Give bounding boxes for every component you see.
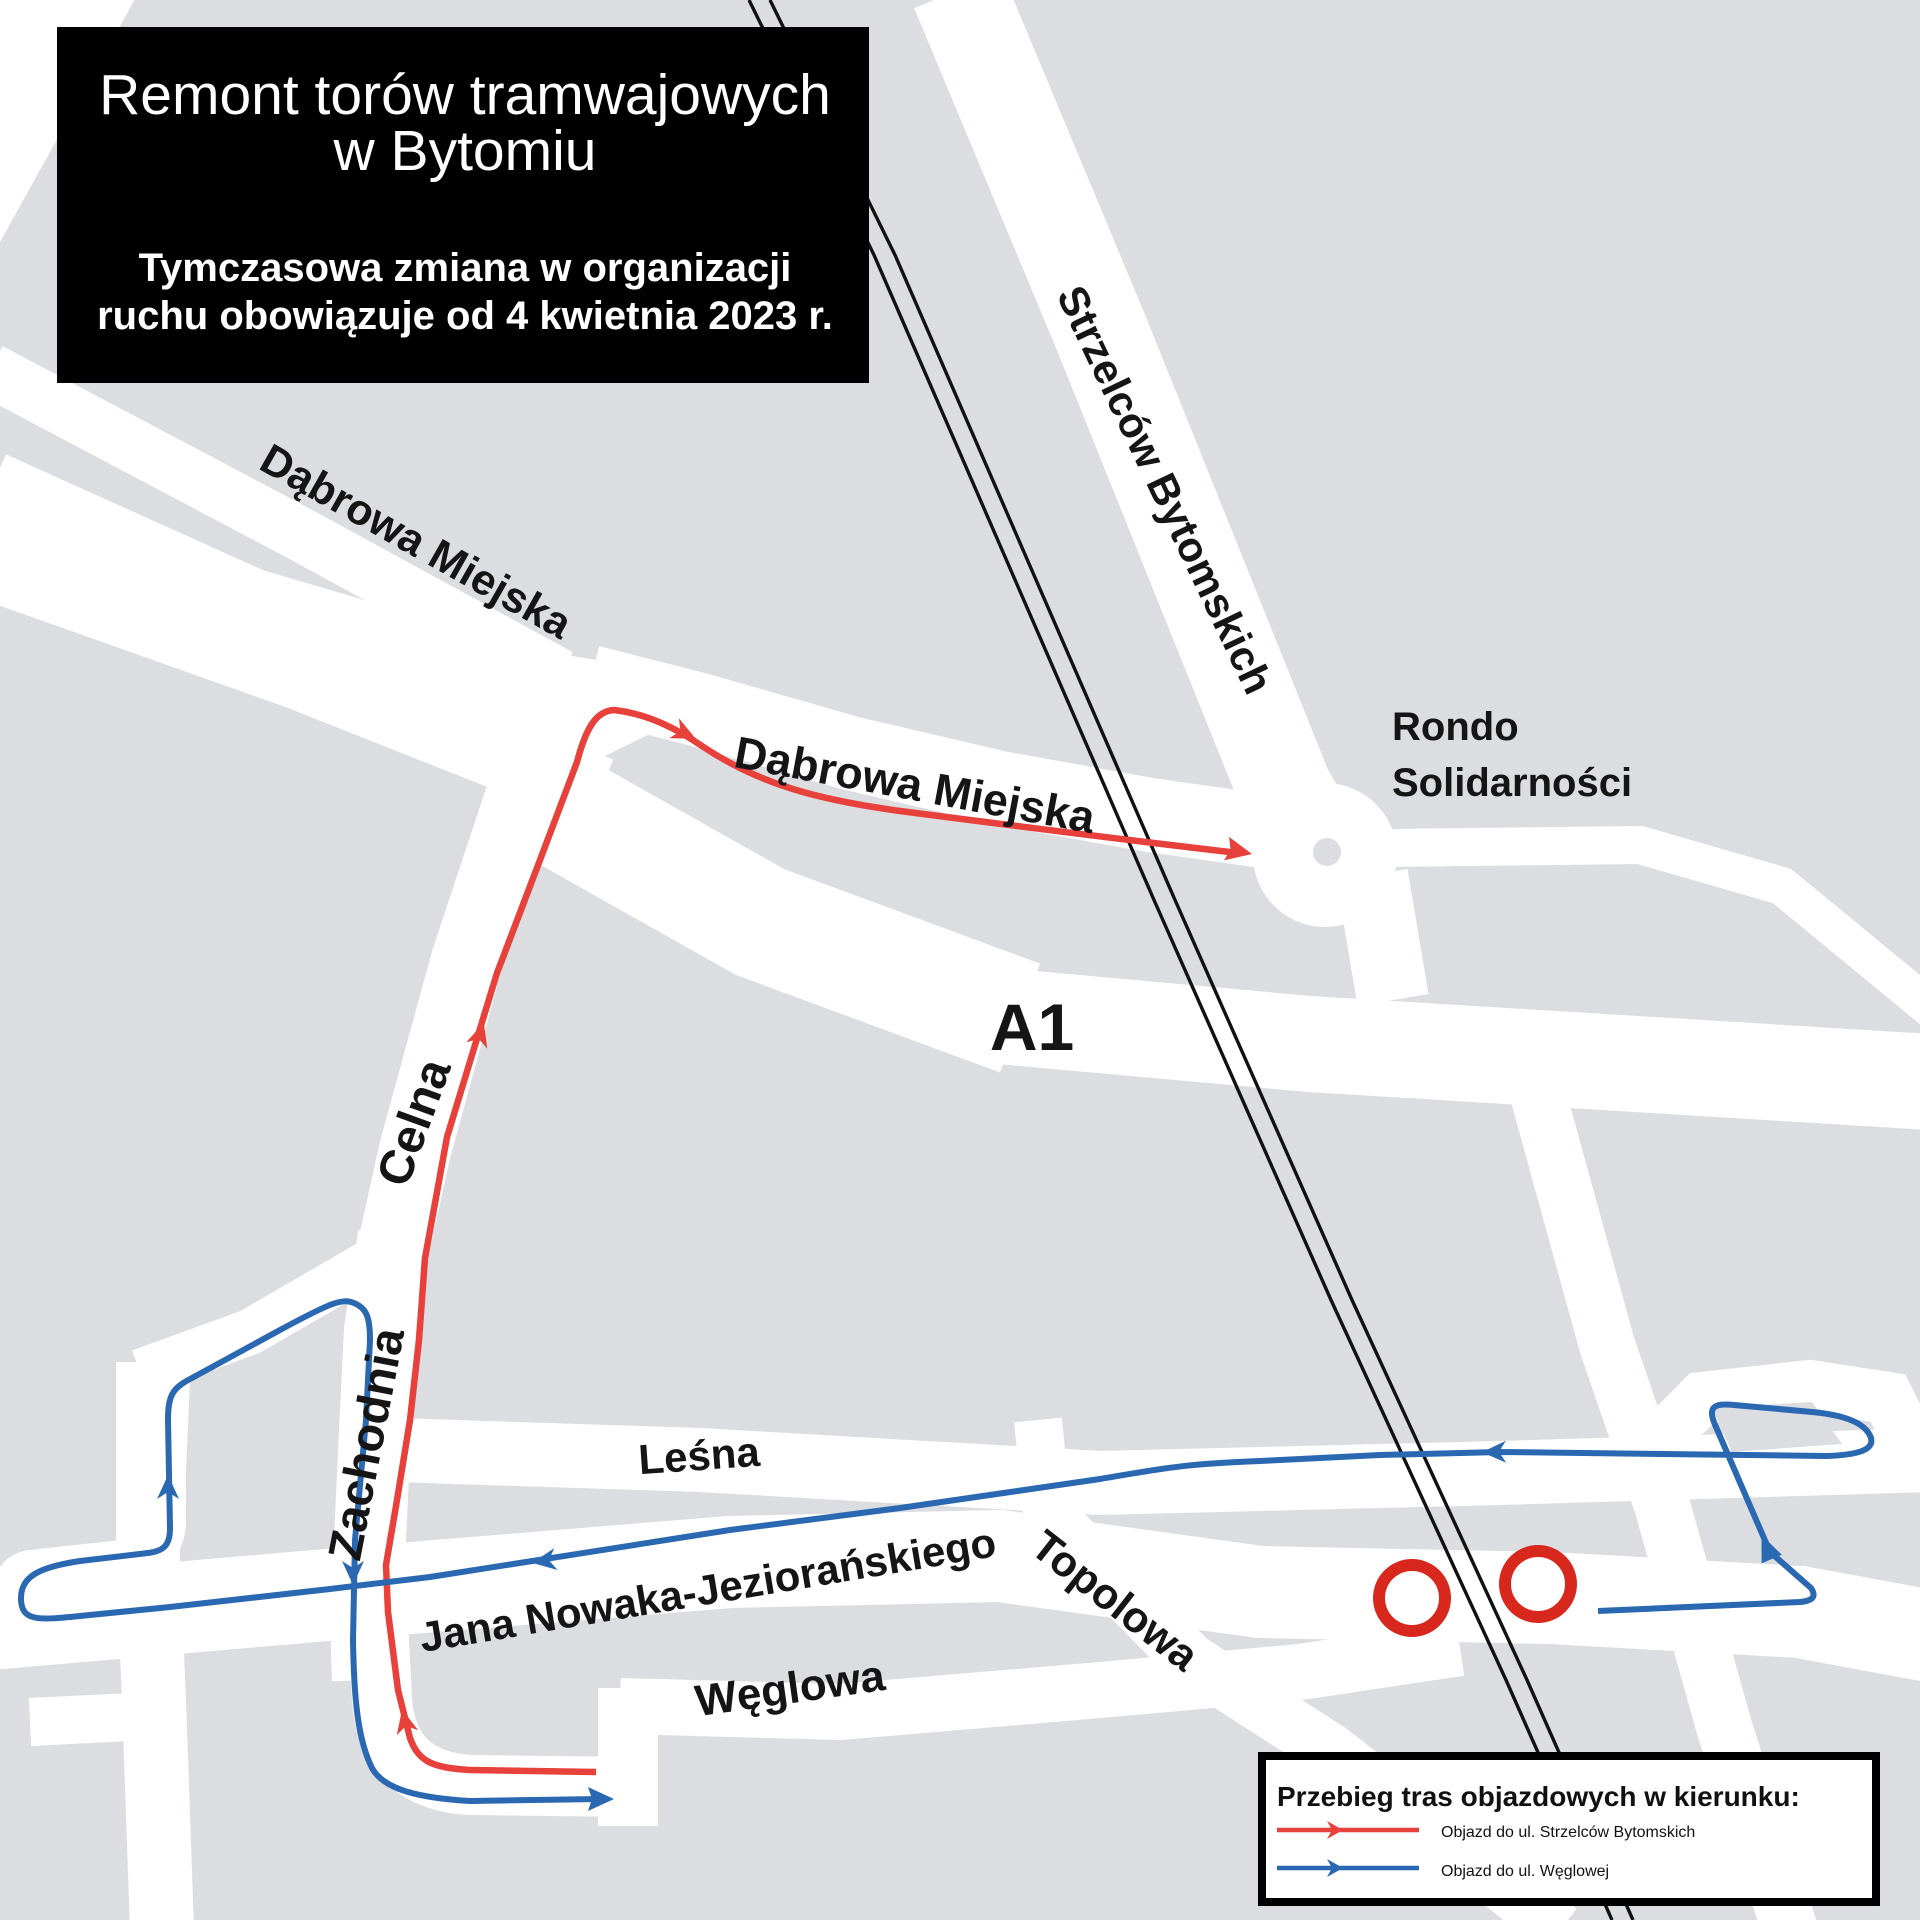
- svg-text:Solidarności: Solidarności: [1392, 761, 1632, 805]
- svg-text:Przebieg tras objazdowych w ki: Przebieg tras objazdowych w kierunku:: [1277, 1781, 1800, 1812]
- svg-text:A1: A1: [990, 990, 1074, 1064]
- svg-text:w Bytomiu: w Bytomiu: [333, 119, 597, 183]
- svg-text:ruchu obowiązuje od 4 kwietnia: ruchu obowiązuje od 4 kwietnia 2023 r.: [97, 294, 833, 338]
- svg-text:Leśna: Leśna: [637, 1428, 762, 1483]
- svg-text:Rondo: Rondo: [1392, 705, 1519, 749]
- svg-text:Tymczasowa zmiana w organizacj: Tymczasowa zmiana w organizacji: [139, 246, 792, 290]
- svg-text:Remont torów tramwajowych: Remont torów tramwajowych: [99, 63, 831, 127]
- svg-text:Objazd do ul. Węglowej: Objazd do ul. Węglowej: [1441, 1863, 1609, 1880]
- svg-text:Objazd do ul. Strzelców Bytoms: Objazd do ul. Strzelców Bytomskich: [1441, 1824, 1695, 1841]
